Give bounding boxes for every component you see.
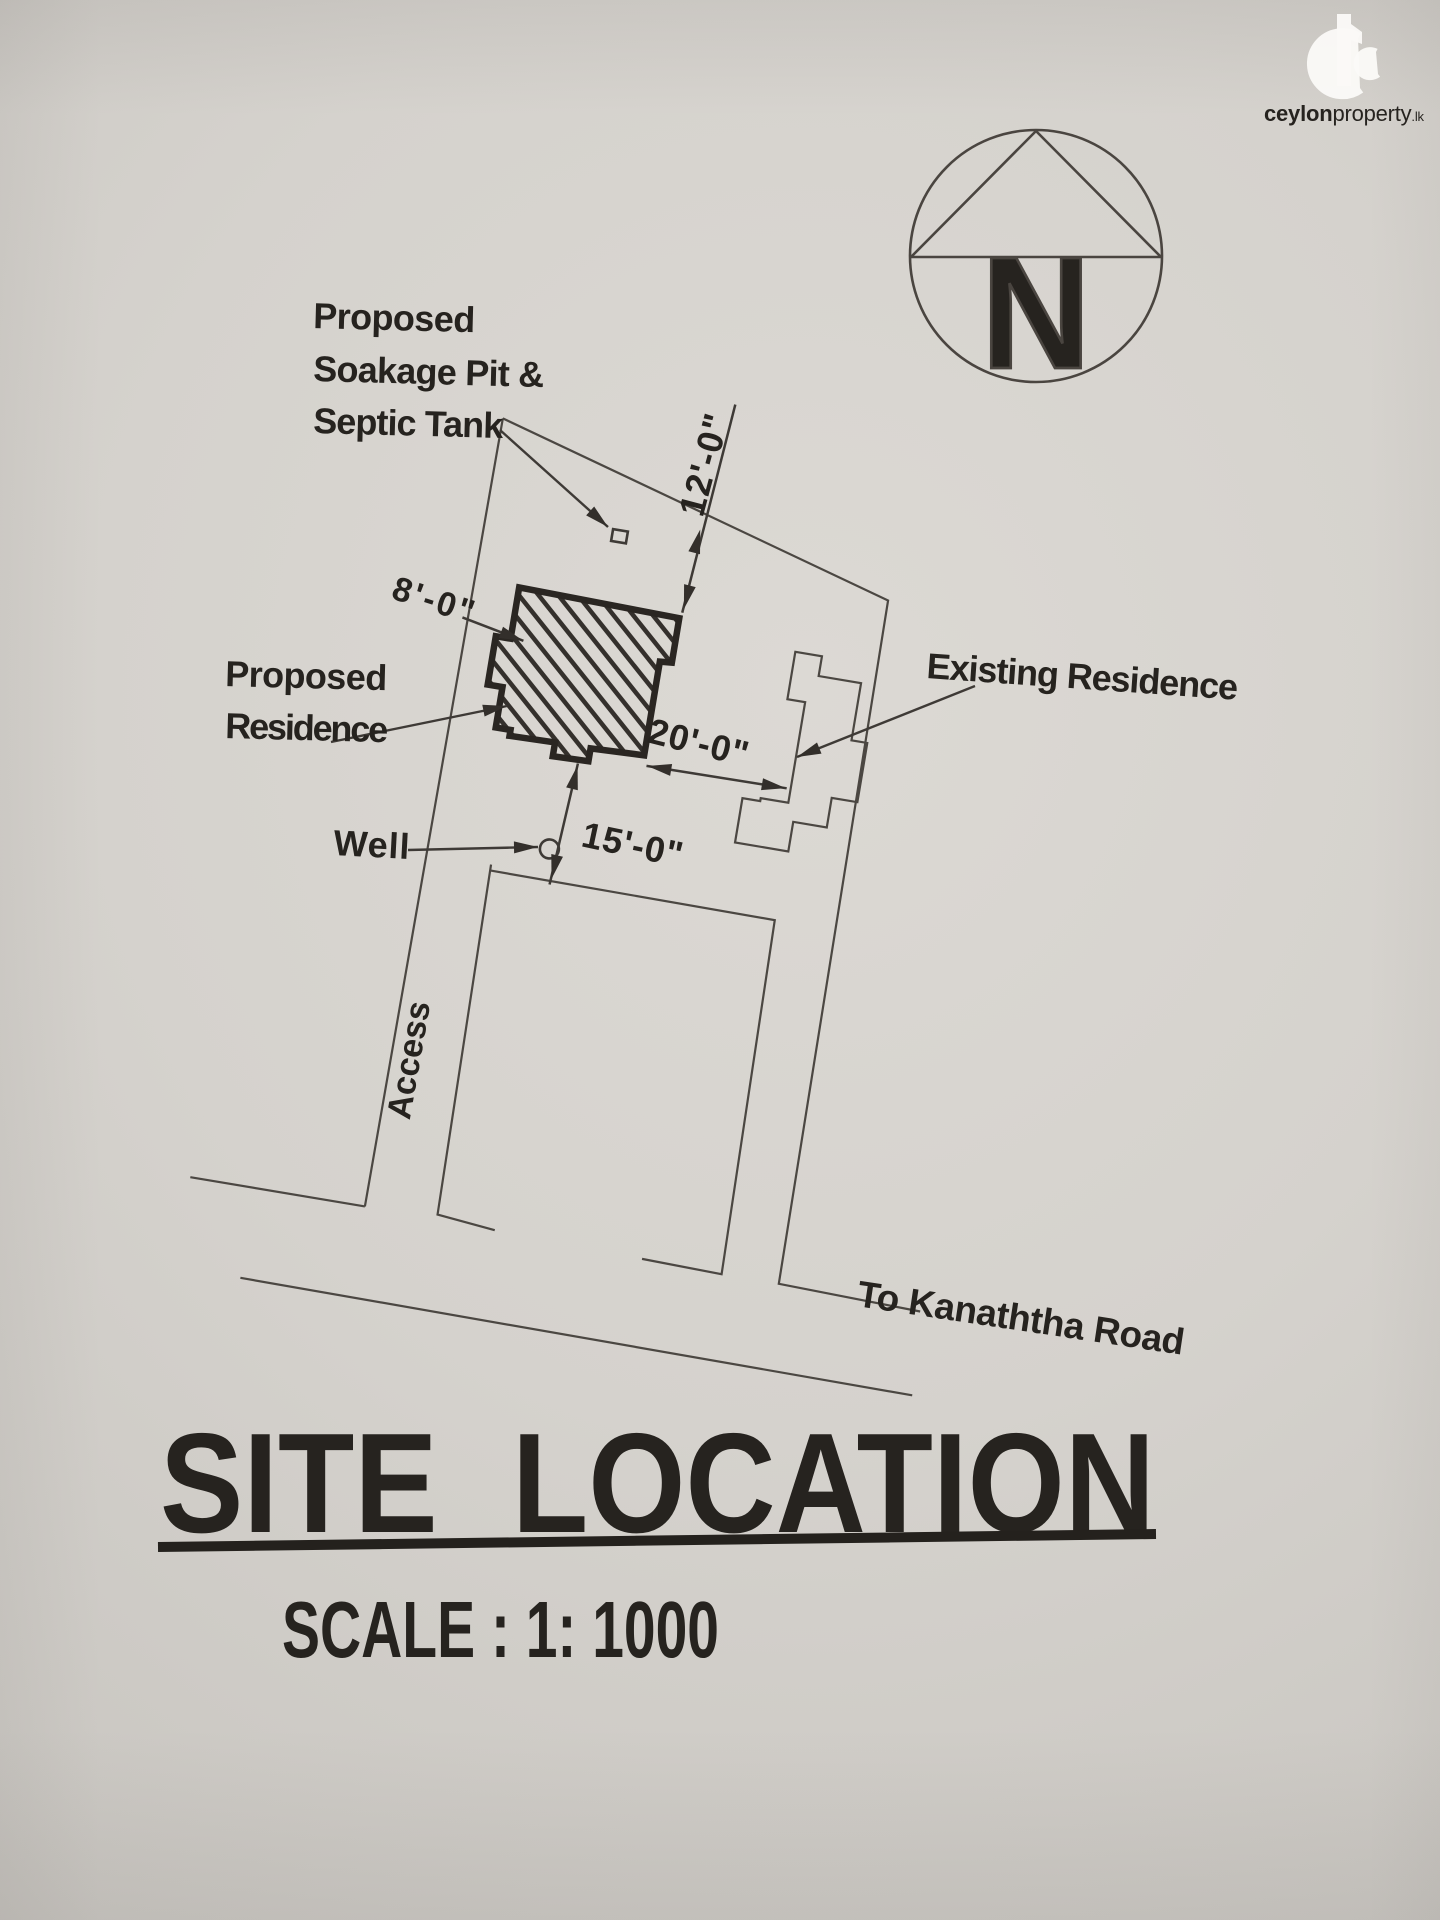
ceylonproperty-icon [1312, 14, 1378, 94]
existing-residence-label: Existing Residence [925, 645, 1239, 708]
main-road-north-edge-west [190, 1177, 365, 1206]
dim-arrowhead [566, 764, 583, 790]
watermark-brand-primary: ceylon [1264, 101, 1333, 126]
dim-arrowhead [646, 760, 672, 776]
compass-letter: N [981, 224, 1091, 402]
plot-boundary [363, 417, 1054, 1311]
dim-east-label: 20'-0" [644, 710, 753, 774]
watermark-logo: ceylonproperty.lk [1264, 14, 1425, 126]
access-road-label: Access [380, 998, 438, 1122]
watermark-text: ceylonproperty.lk [1264, 101, 1425, 126]
dim-south-label: 15'-0" [578, 814, 686, 875]
well-label: Well [333, 822, 411, 867]
road-label: To Kanaththa Road [855, 1273, 1187, 1362]
dim-arrowhead [761, 778, 787, 794]
north-compass-icon: N [910, 130, 1162, 403]
soakage-pit-marker [611, 529, 628, 543]
existing-residence-leader-line [797, 686, 975, 757]
site-plan-drawing: ceylonproperty.lk N [0, 0, 1440, 1920]
neighbor-parcel-outline [431, 870, 781, 1274]
main-road-south-edge [240, 1278, 913, 1395]
soakage-label-line1: Proposed [313, 295, 476, 340]
dim-arrowhead [678, 584, 696, 610]
soakage-label-line3: Septic Tank [313, 400, 505, 446]
proposed-residence-label-line1: Proposed [225, 653, 388, 698]
leader-arrowhead [514, 841, 538, 853]
plot-geometry [174, 337, 1068, 1395]
scanned-site-plan-page: ceylonproperty.lk N [0, 0, 1440, 1920]
dim-west-label: 8'-0" [388, 569, 480, 631]
title-block: SITE LOCATION SCALE : 1: 1000 [158, 1404, 1156, 1674]
dim-north-label: 12'-0" [671, 409, 738, 520]
watermark-brand-suffix: .lk [1411, 109, 1424, 124]
proposed-residence-label-line2: Residence [225, 705, 389, 750]
access-road-right-edge [432, 865, 555, 1231]
soakage-label-line2: Soakage Pit & [313, 348, 545, 395]
scale-label: SCALE : 1: 1000 [282, 1585, 719, 1674]
watermark-brand-secondary: property [1332, 101, 1411, 126]
